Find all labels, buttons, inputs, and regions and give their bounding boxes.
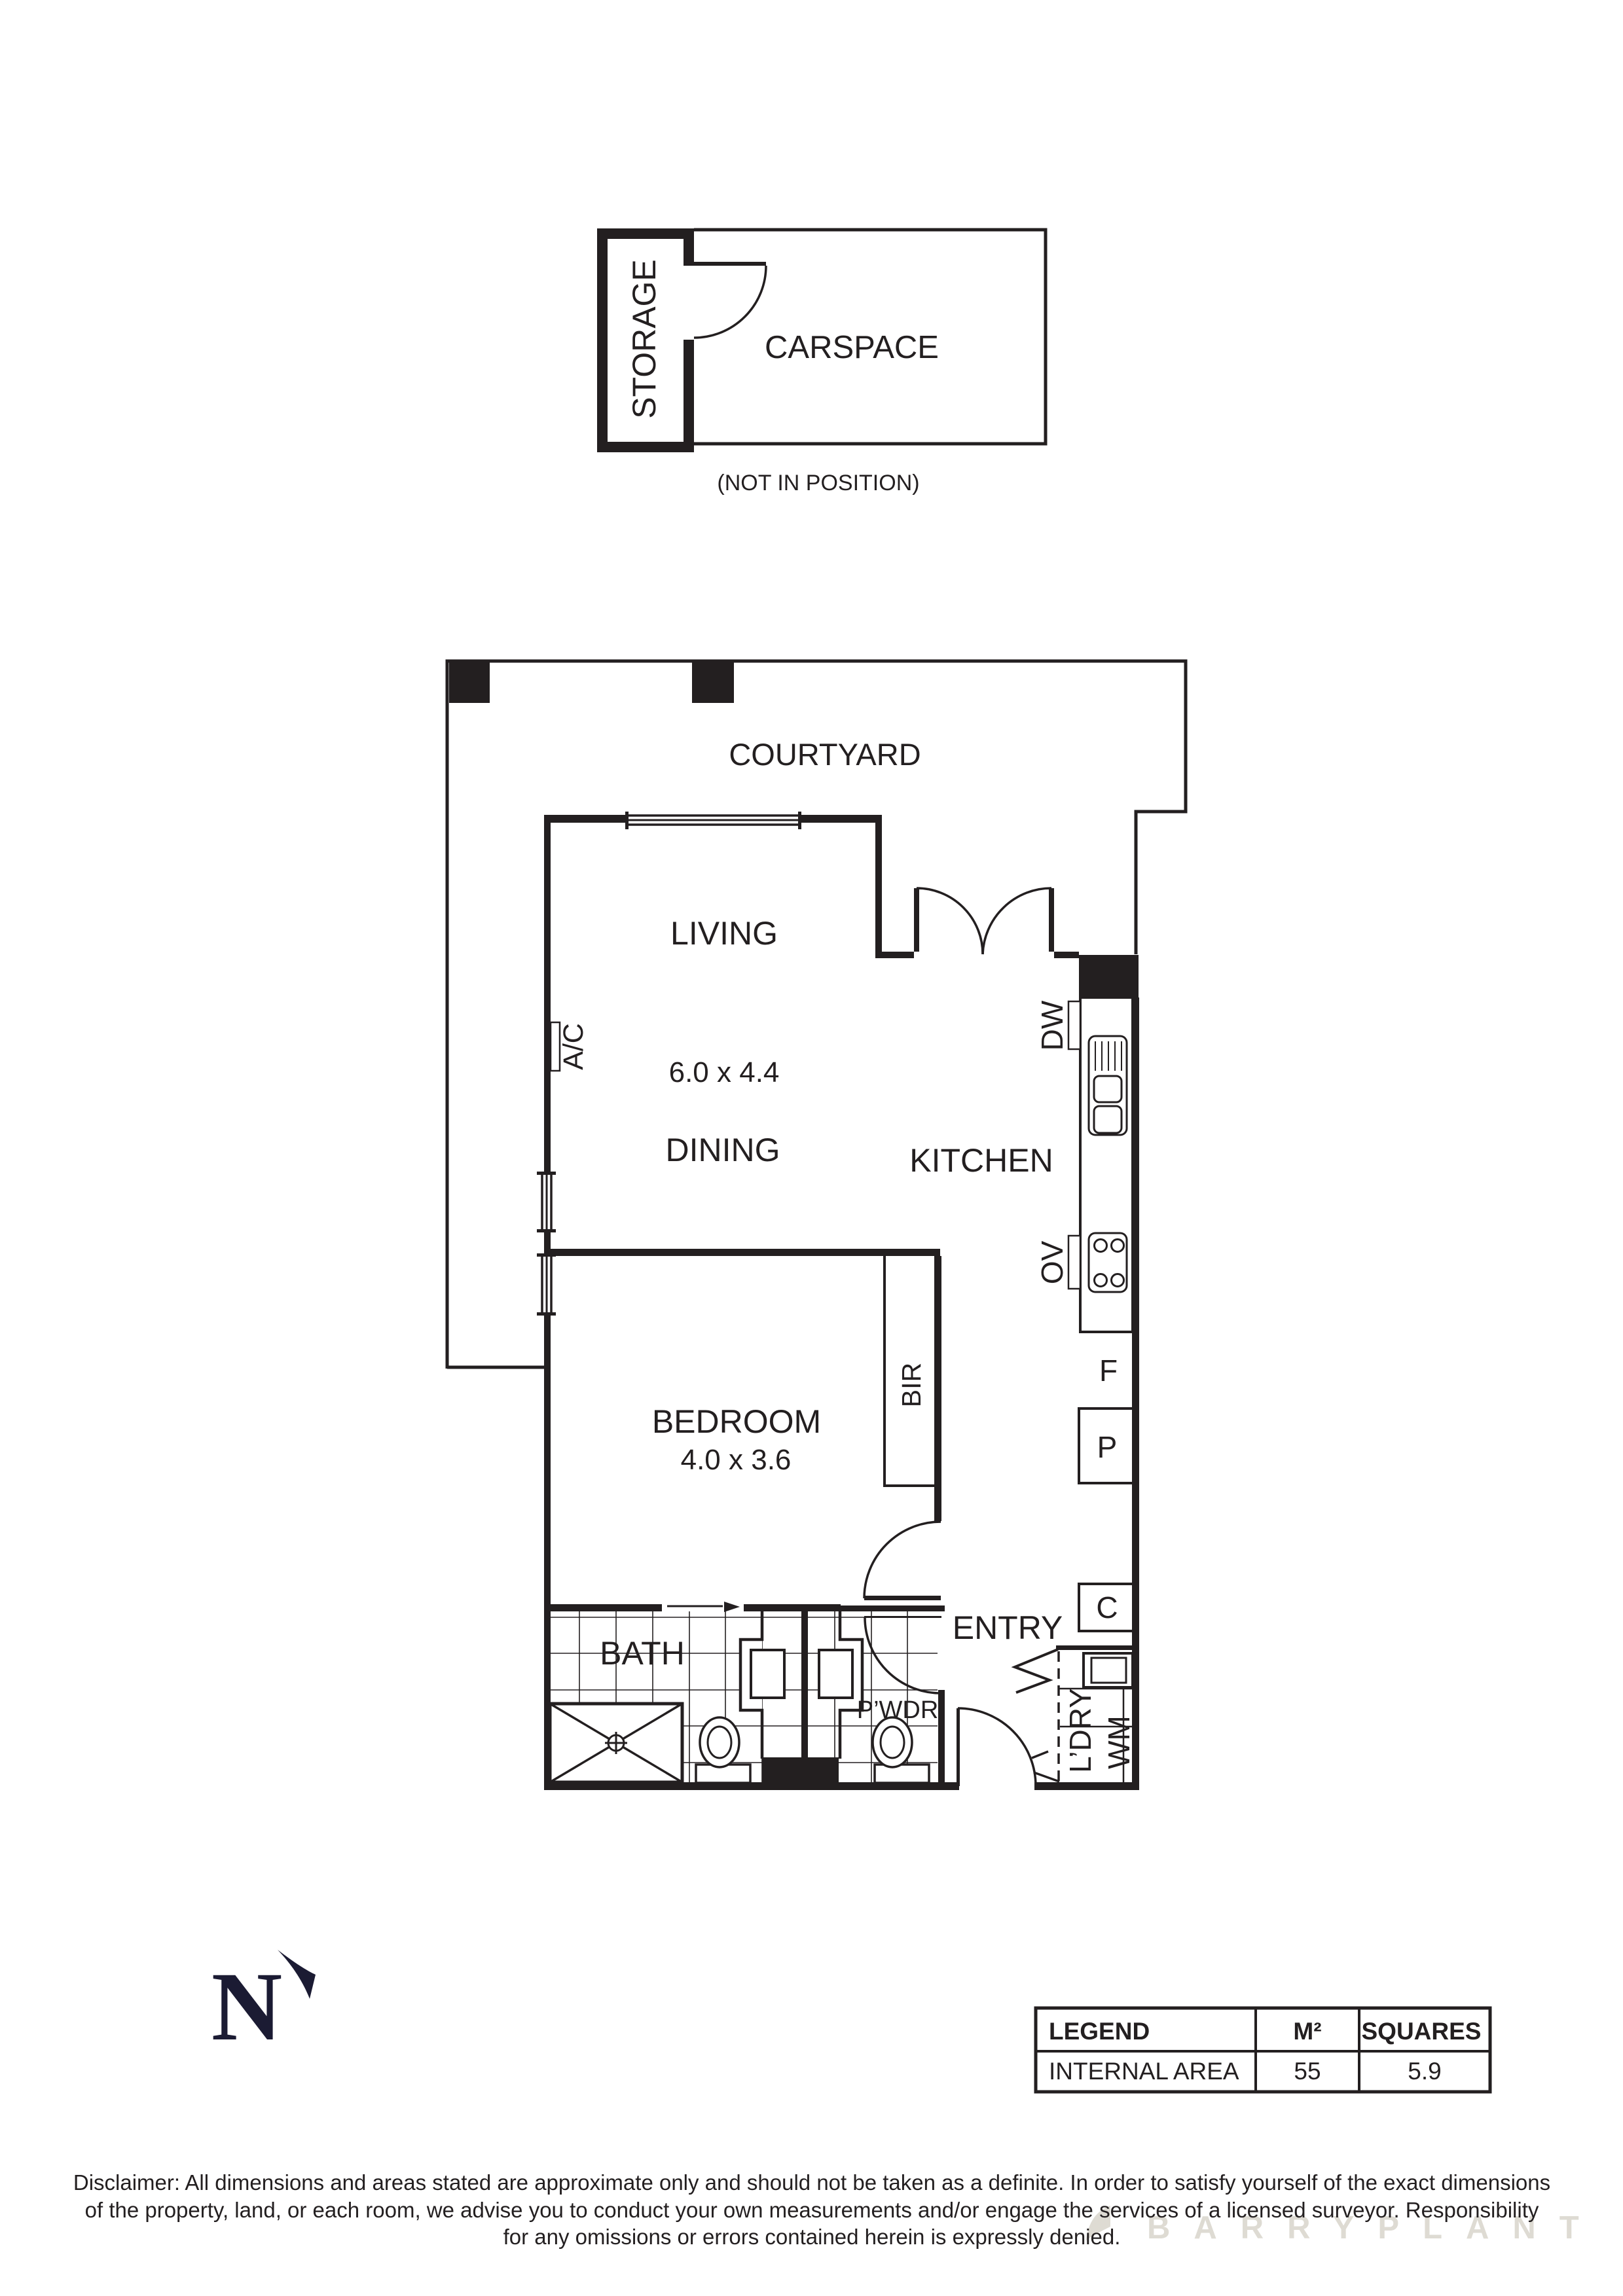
svg-text:L’DRY: L’DRY (1063, 1688, 1097, 1773)
svg-text:LIVING: LIVING (670, 915, 778, 952)
svg-text:CARSPACE: CARSPACE (765, 330, 939, 365)
svg-text:N: N (211, 1952, 282, 2061)
svg-text:LEGEND: LEGEND (1049, 2018, 1150, 2045)
svg-text:BEDROOM: BEDROOM (652, 1403, 821, 1440)
svg-text:SQUARES: SQUARES (1362, 2018, 1482, 2045)
svg-text:of the property, land, or each: of the property, land, or each room, we … (85, 2198, 1539, 2222)
svg-text:4.0 x 3.6: 4.0 x 3.6 (681, 1444, 792, 1476)
svg-text:M²: M² (1293, 2018, 1321, 2045)
svg-text:DINING: DINING (666, 1132, 780, 1168)
svg-text:5.9: 5.9 (1408, 2058, 1441, 2085)
svg-text:BATH: BATH (600, 1635, 685, 1672)
svg-text:for any omissions or errors co: for any omissions or errors contained he… (503, 2225, 1121, 2249)
svg-text:ENTRY: ENTRY (953, 1609, 1063, 1646)
svg-text:55: 55 (1294, 2058, 1321, 2085)
svg-text:COURTYARD: COURTYARD (729, 737, 921, 772)
svg-text:C: C (1096, 1590, 1118, 1624)
svg-text:BIR: BIR (896, 1363, 926, 1407)
svg-text:KITCHEN: KITCHEN (909, 1142, 1053, 1179)
svg-text:P: P (1097, 1430, 1118, 1464)
svg-text:INTERNAL AREA: INTERNAL AREA (1049, 2058, 1239, 2085)
svg-text:WM: WM (1102, 1715, 1136, 1769)
svg-text:A/C: A/C (558, 1023, 589, 1070)
svg-text:6.0 x 4.4: 6.0 x 4.4 (669, 1056, 780, 1088)
svg-text:OV: OV (1035, 1240, 1069, 1284)
svg-text:Disclaimer: All dimensions and: Disclaimer: All dimensions and areas sta… (73, 2170, 1550, 2195)
svg-text:DW: DW (1035, 1000, 1069, 1050)
svg-text:F: F (1099, 1354, 1118, 1388)
svg-text:STORAGE: STORAGE (626, 259, 663, 419)
svg-text:P’WDR: P’WDR (857, 1696, 939, 1724)
svg-text:(NOT IN POSITION): (NOT IN POSITION) (717, 471, 919, 495)
